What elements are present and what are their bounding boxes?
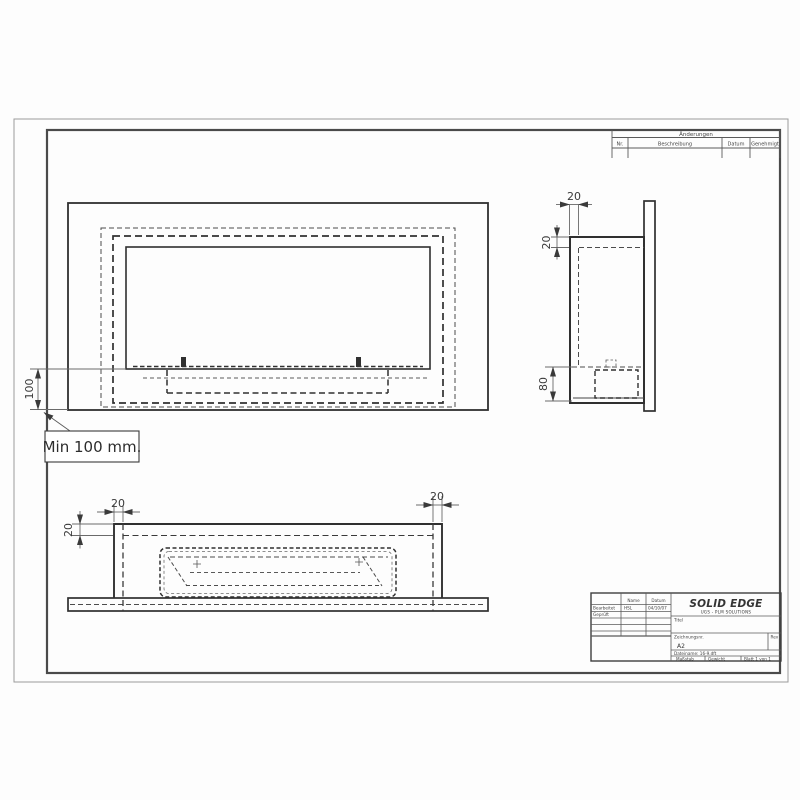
revision-col-approved: Genehmigt [751, 142, 779, 148]
solid-edge-logo: SOLID EDGE [689, 598, 763, 610]
drawing-page: Änderungen Nr. Beschreibung Datum Genehm… [0, 0, 800, 800]
titleblock-rev-label: Rev [771, 635, 779, 640]
bottom-center-mark-right [355, 558, 363, 566]
bottom-burner-slant-right [363, 557, 382, 586]
side-wall-plate [644, 201, 655, 411]
bottom-dim-topleft-20: 20 [97, 497, 140, 522]
titleblock-scale-label: Maßstab [676, 656, 694, 661]
bottom-view [68, 524, 488, 611]
side-fuelbox [595, 370, 638, 398]
titleblock-drawingno-label: Zeichnungsnr. [674, 635, 704, 640]
bottom-dim-topright-20: 20 [416, 490, 459, 522]
dim-bottom-right-wall: 20 [430, 490, 444, 503]
titleblock-col-name: Name [627, 598, 640, 603]
dim-bottom-left-wall: 20 [111, 497, 125, 510]
front-hidden-frame-outer [101, 228, 455, 407]
titleblock-drawn-name: HSL [624, 606, 633, 611]
revision-col-date: Datum [728, 142, 745, 148]
front-burner-clip-left [181, 357, 186, 367]
revision-col-nr: Nr. [617, 142, 624, 148]
titleblock-filename: Dateiname: 16-9.dft [674, 651, 717, 656]
side-dim-80: 80 [537, 367, 572, 401]
front-burner-clip-right [356, 357, 361, 367]
titleblock-title-label: Titel [673, 618, 683, 623]
cad-sheet: Änderungen Nr. Beschreibung Datum Genehm… [0, 0, 800, 800]
side-dim-left-20: 20 [540, 225, 569, 260]
titleblock-drawn-date: 04/10/07 [648, 606, 667, 611]
dim-side-top-wall: 20 [540, 236, 553, 250]
front-dim-100: 100 [23, 369, 126, 410]
titleblock-drawingno-value: A2 [677, 643, 685, 650]
revision-col-description: Beschreibung [658, 142, 692, 148]
bottom-dim-left-20: 20 [62, 511, 113, 549]
side-dim-top-20: 20 [556, 190, 592, 235]
revision-table: Änderungen Nr. Beschreibung Datum Genehm… [612, 130, 780, 158]
front-view [68, 203, 488, 410]
dim-bottom-top-wall: 20 [62, 523, 75, 537]
solid-edge-logo-sub: UGS - PLM SOLUTIONS [701, 610, 752, 615]
min-height-note: Min 100 mm. [43, 413, 142, 463]
titleblock-weight-label: Gewicht [708, 656, 725, 661]
side-body [570, 237, 644, 403]
bottom-burner-slant-left [168, 557, 187, 586]
bottom-center-mark-left [193, 560, 201, 568]
dim-front-min-height: 100 [23, 379, 36, 400]
titleblock-drawn-label: Bearbeitet [593, 606, 615, 611]
title-block: Name Datum Bearbeitet HSL 04/10/07 Geprü… [591, 593, 781, 661]
dim-side-front-wall: 20 [567, 190, 581, 203]
revision-table-title: Änderungen [679, 131, 713, 138]
titleblock-sheet-label: Blatt 1 von 1 [744, 656, 771, 661]
side-burner-clip [606, 360, 616, 367]
titleblock-col-date: Datum [651, 598, 665, 603]
side-view [570, 201, 655, 411]
note-text: Min 100 mm. [43, 438, 142, 456]
dim-side-burner-box: 80 [537, 377, 550, 391]
titleblock-checked-label: Geprüft [593, 612, 609, 617]
front-opening [126, 247, 430, 369]
front-outer-plate [68, 203, 488, 410]
inner-frame-border [47, 130, 780, 673]
